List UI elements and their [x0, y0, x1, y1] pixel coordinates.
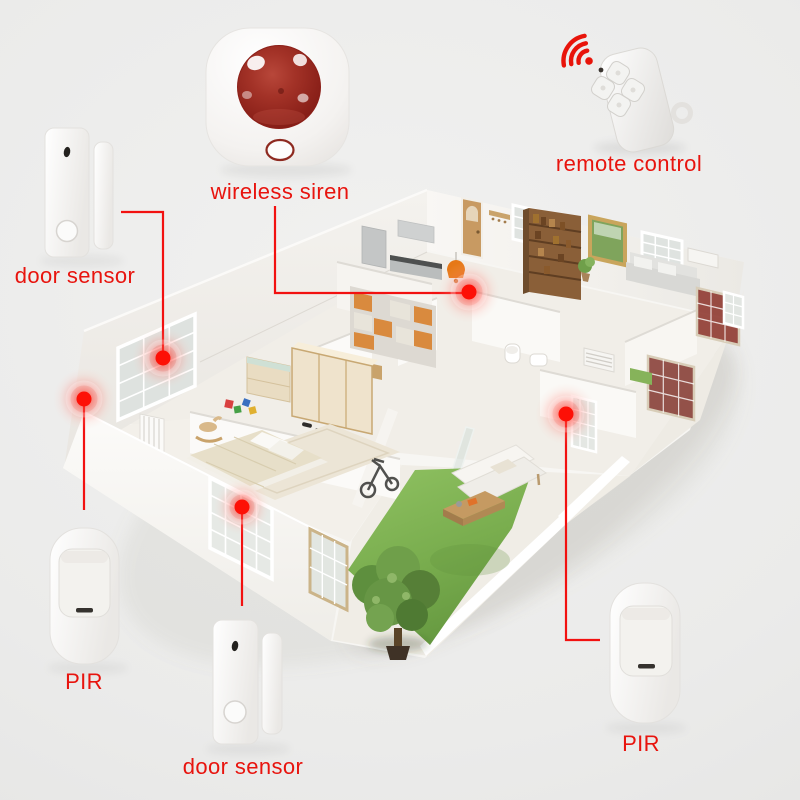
door-sensor-device-top: [40, 128, 124, 267]
keyring-loop: [674, 105, 691, 122]
wireless-siren-device: [206, 28, 352, 178]
floorplan-illustration: [63, 190, 792, 743]
marker-front-bedroom-window: [214, 479, 270, 535]
remote-led: [599, 68, 604, 73]
label-pir-left: PIR: [0, 670, 169, 694]
label-remote-control: remote control: [544, 152, 714, 176]
label-wireless-siren: wireless siren: [195, 180, 365, 204]
entry-door: [462, 198, 482, 258]
marker-left-wall-corner: [53, 368, 115, 430]
wifi-signal-icon: [559, 35, 593, 69]
label-door-sensor-top: door sensor: [0, 264, 160, 288]
product-diagram: door sensor wireless siren remote contro…: [0, 0, 800, 800]
marker-left-wall-window: [132, 327, 194, 389]
marker-rear-hallway-door: [535, 383, 597, 445]
door-sensor-device-bottom: [206, 620, 290, 755]
siren-button: [267, 140, 294, 160]
label-pir-right: PIR: [556, 732, 726, 756]
marker-entry-hallway: [438, 261, 500, 323]
pir-device-right: [606, 583, 686, 734]
bookshelf: [523, 208, 581, 300]
label-door-sensor-bottom: door sensor: [158, 755, 328, 779]
right-small-window: [724, 292, 743, 328]
pir-device-left: [48, 528, 128, 674]
framed-picture: [590, 217, 625, 265]
remote-control-device: [559, 35, 690, 155]
